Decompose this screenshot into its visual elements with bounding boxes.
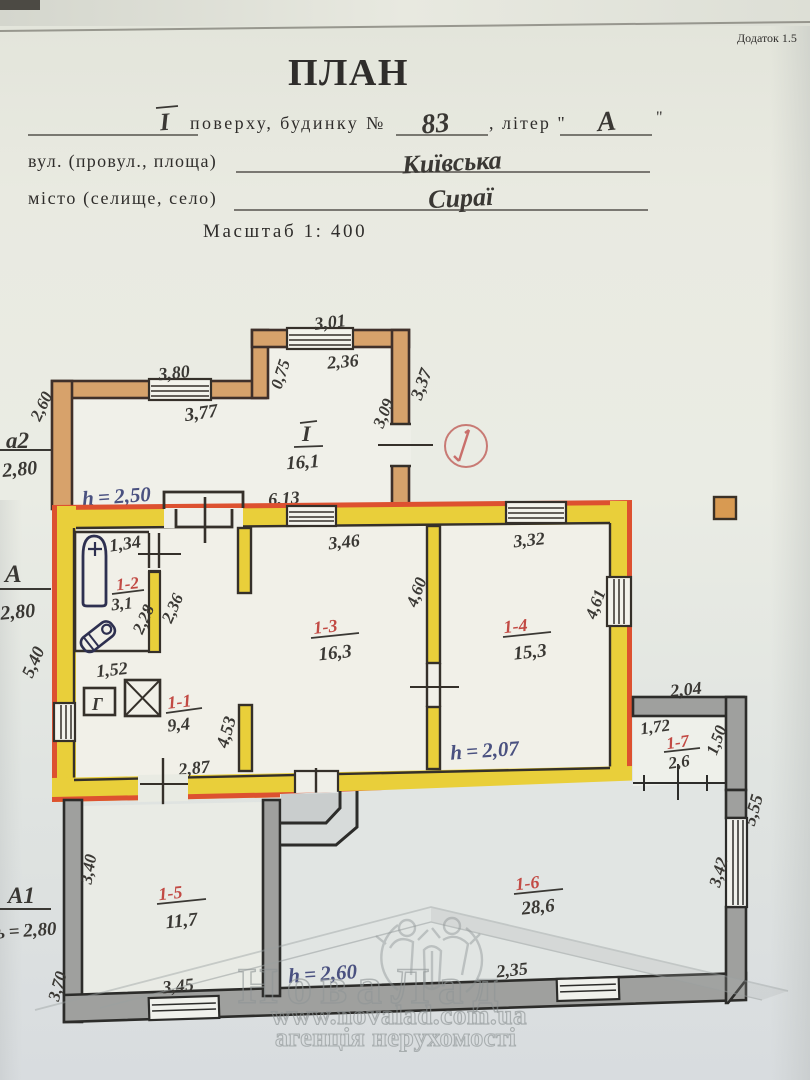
- svg-text:1-4: 1-4: [502, 615, 528, 637]
- svg-text:ь = 2,80: ь = 2,80: [0, 918, 58, 943]
- svg-text:1,52: 1,52: [95, 658, 128, 681]
- svg-text:Додаток 1.5: Додаток 1.5: [737, 31, 797, 45]
- svg-text:": ": [656, 109, 663, 126]
- svg-text:h = 2,07: h = 2,07: [449, 736, 521, 765]
- svg-text:вул. (провул., площа): вул. (провул., площа): [28, 151, 217, 172]
- svg-text:2,6: 2,6: [666, 751, 691, 773]
- svg-text:Сираї: Сираї: [427, 182, 495, 214]
- svg-text:16,1: 16,1: [285, 451, 320, 474]
- svg-text:1-3: 1-3: [312, 615, 338, 637]
- svg-text:Г: Г: [91, 694, 103, 714]
- svg-text:, літер ": , літер ": [489, 113, 567, 133]
- svg-text:11,7: 11,7: [164, 909, 200, 933]
- svg-text:3,46: 3,46: [326, 530, 360, 553]
- svg-text:83: 83: [420, 107, 451, 140]
- svg-text:3,01: 3,01: [312, 310, 347, 334]
- svg-text:поверху, будинку №: поверху, будинку №: [190, 113, 386, 133]
- svg-text:I: I: [301, 421, 312, 446]
- svg-text:А: А: [3, 561, 22, 588]
- svg-text:15,3: 15,3: [512, 640, 547, 664]
- svg-text:Масштаб 1: 400: Масштаб 1: 400: [203, 221, 367, 242]
- svg-text:9,4: 9,4: [166, 713, 190, 735]
- svg-text:ПЛАН: ПЛАН: [288, 52, 409, 94]
- svg-text:16,3: 16,3: [317, 641, 352, 665]
- svg-text:2,04: 2,04: [668, 678, 702, 701]
- svg-text:2,80: 2,80: [0, 600, 36, 625]
- svg-text:28,6: 28,6: [519, 895, 556, 920]
- svg-text:А1: А1: [6, 883, 35, 908]
- svg-text:місто (селище, село): місто (селище, село): [28, 188, 217, 209]
- svg-text:A: A: [594, 106, 617, 139]
- svg-text:3,45: 3,45: [160, 974, 194, 997]
- svg-text:агенція нерухомості: агенція нерухомості: [275, 1023, 516, 1052]
- svg-text:Київська: Київська: [400, 145, 502, 179]
- svg-text:3,1: 3,1: [109, 593, 133, 614]
- svg-text:2,80: 2,80: [0, 457, 38, 482]
- svg-text:3,32: 3,32: [511, 528, 545, 551]
- svg-text:2,36: 2,36: [325, 350, 359, 373]
- svg-text:3,80: 3,80: [156, 361, 190, 384]
